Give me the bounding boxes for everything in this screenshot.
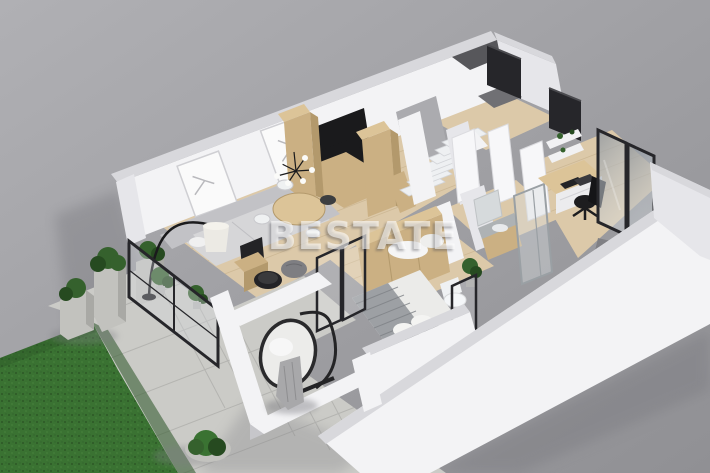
- pouf: [281, 260, 307, 278]
- dining-chair: [254, 214, 270, 224]
- sofa-throw: [189, 237, 207, 247]
- floor-plan-render: BESTATE: [0, 0, 710, 473]
- dining-chair: [306, 229, 320, 238]
- dining-chair: [277, 180, 293, 190]
- basin: [492, 224, 508, 232]
- dining-table: [273, 193, 325, 225]
- tall-cabinet-2: [362, 129, 396, 217]
- chair-pillow: [269, 338, 293, 356]
- dining-chair-dark: [320, 195, 336, 205]
- floor-plan-canvas: [0, 0, 710, 473]
